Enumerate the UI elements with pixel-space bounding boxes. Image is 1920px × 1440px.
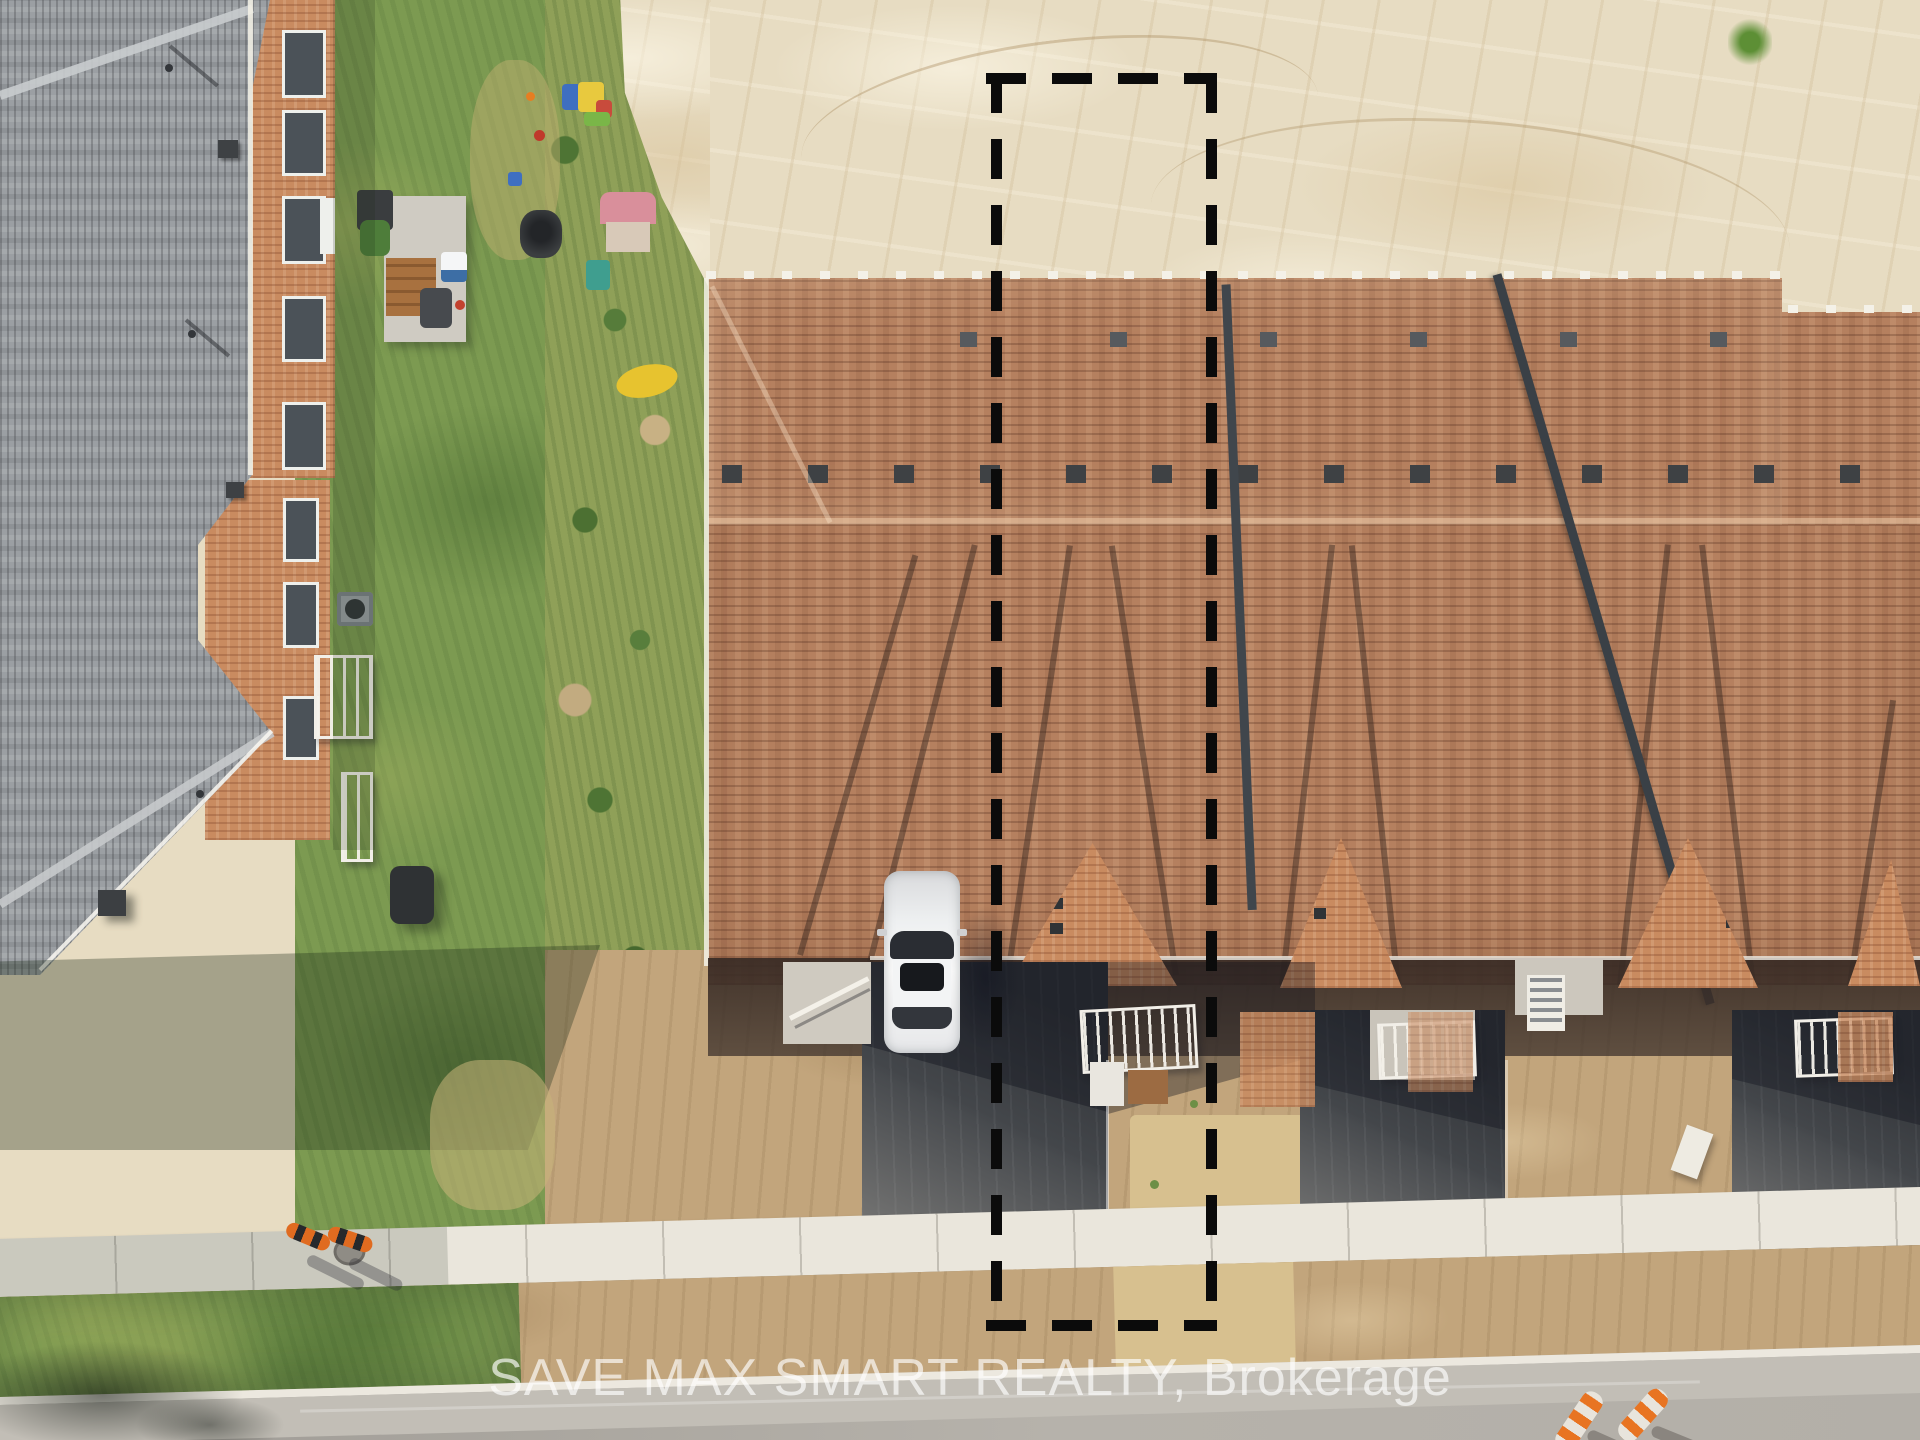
playhouse-roof (600, 192, 656, 224)
front-wall-brick (1408, 1012, 1473, 1092)
weed-tuft (1150, 1180, 1159, 1189)
pipe-vent (165, 64, 173, 72)
dry-grass-patch (430, 1060, 555, 1210)
car-mirror (957, 929, 967, 936)
window (282, 30, 326, 98)
front-window (1527, 975, 1565, 1031)
watermark-text: SAVE MAX SMART REALTY, Brokerage (400, 1348, 1540, 1408)
toy-slide-green (584, 112, 610, 126)
roof-gutter-ticks (1788, 305, 1920, 313)
patio-chair (420, 288, 452, 328)
window (283, 582, 319, 648)
white-car (884, 871, 960, 1053)
car-rear-window (892, 1007, 952, 1029)
roof-vent-row (722, 465, 1882, 483)
porch-door (1090, 1062, 1124, 1106)
pipe-vent (196, 790, 204, 798)
car-windshield (890, 931, 954, 959)
window (282, 296, 326, 362)
brick-wall-upper (250, 0, 335, 478)
car-sunroof (900, 963, 944, 991)
house-shadow-on-lawn (333, 0, 375, 850)
property-boundary-bottom (986, 1320, 1217, 1331)
property-boundary-top (986, 73, 1217, 84)
lawn-speck-red (455, 300, 465, 310)
window (282, 110, 326, 176)
toy-small-red (534, 130, 545, 141)
roof-vent-row-upper (960, 332, 1860, 347)
play-tent (520, 210, 562, 258)
roof-gutter-ticks (706, 271, 1784, 279)
window (283, 498, 319, 562)
toy-teal-bin (586, 260, 610, 290)
property-boundary-left (991, 73, 1002, 1330)
sand-weed-clump (1728, 18, 1772, 66)
toy-small-orange (526, 92, 535, 101)
window (282, 402, 326, 470)
gable-vent (1050, 923, 1063, 934)
cooler (441, 252, 467, 282)
bbq-grill (390, 866, 434, 924)
brick-wall-lower (205, 480, 330, 840)
porch-box (1128, 1070, 1168, 1104)
playhouse-body (606, 222, 650, 252)
front-wall-brick (1240, 1012, 1315, 1107)
car-mirror (877, 929, 887, 936)
aerial-photo: SAVE MAX SMART REALTY, Brokerage (0, 0, 1920, 1440)
tree-shadow (120, 1390, 300, 1440)
roof-ridge-highlight (708, 518, 1920, 524)
property-boundary-right (1206, 73, 1217, 1330)
roof-vent-box (218, 140, 238, 158)
chimney (98, 890, 126, 916)
front-wall-brick (1838, 1012, 1893, 1082)
roof-vent-box (226, 482, 244, 498)
pipe-vent (188, 330, 196, 338)
roof-fascia (248, 0, 253, 475)
roof-left-fascia (704, 278, 709, 966)
weed-tuft (1190, 1100, 1198, 1108)
townhouse-roof-back-slope (708, 278, 1782, 525)
toy-small-blue (508, 172, 522, 186)
porch-pad (783, 962, 871, 1044)
gable-vent (1314, 908, 1326, 919)
